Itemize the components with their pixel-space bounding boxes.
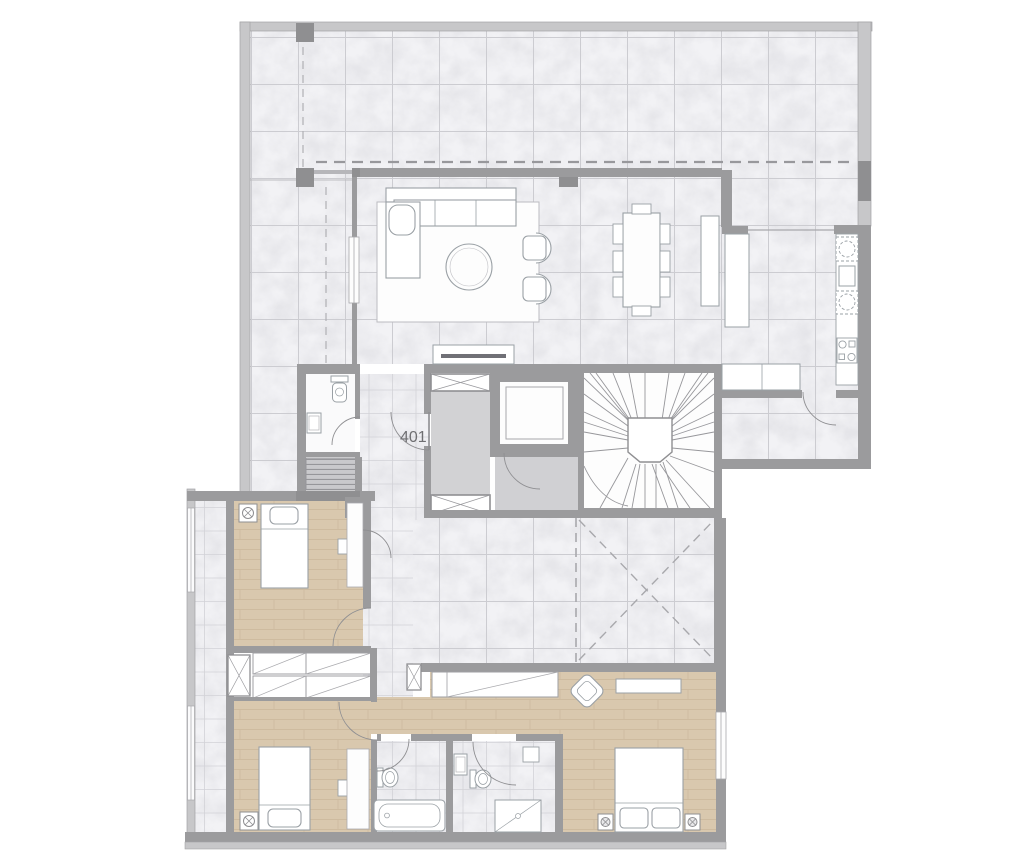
svg-text:401: 401 <box>400 429 427 446</box>
